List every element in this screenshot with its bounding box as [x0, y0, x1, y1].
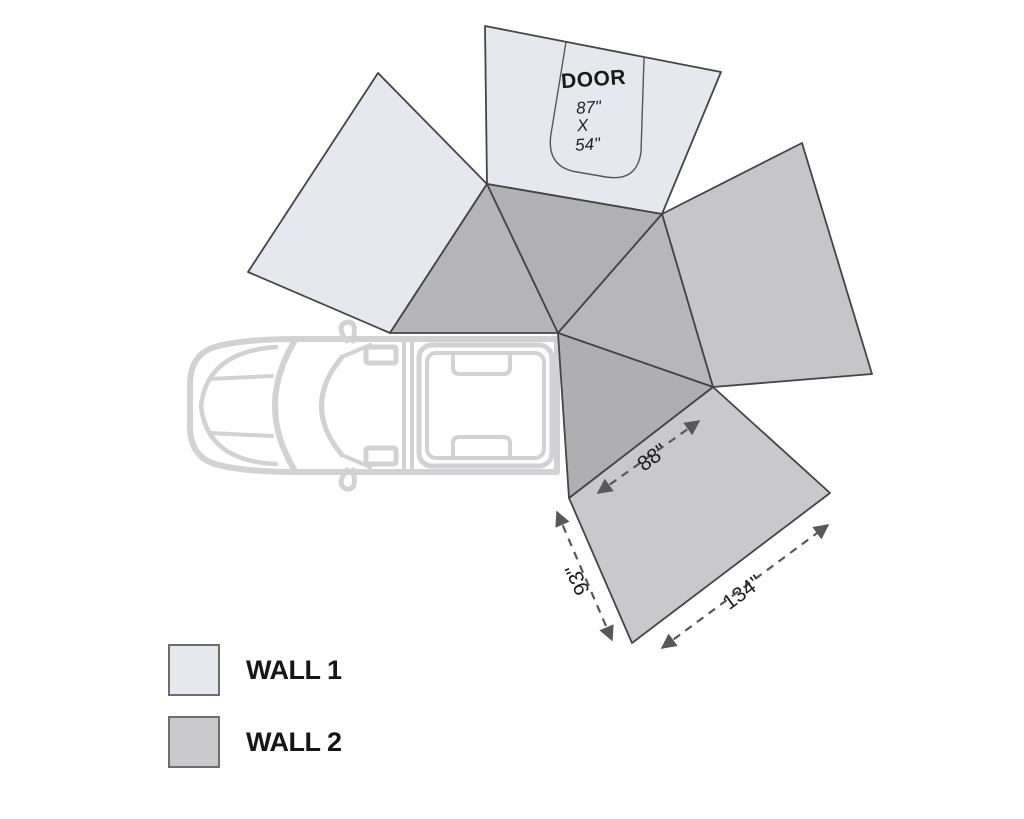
vehicle-front-inner-line [201, 347, 276, 464]
vehicle-b-pillar-bottom [366, 448, 396, 464]
door-title-label: DOOR [560, 66, 626, 93]
measurement-134-label: 134" [719, 571, 767, 615]
awning-dimensions-diagram: DOOR 87" X 54" 88" 93" 134" WALL 1 [0, 0, 1024, 819]
vehicle-bed-notch-bottom [453, 437, 510, 457]
vehicle-hood-crease-top [209, 376, 272, 379]
vehicle-roof-front-arc [322, 357, 343, 455]
vehicle-mirror-bottom [341, 470, 354, 489]
wall1-door-panel [485, 26, 721, 214]
measurement-93-label: 93" [561, 561, 595, 599]
door-height-label: 54" [575, 134, 602, 155]
vehicle-body-outline [190, 339, 557, 472]
vehicle-bed-outer [419, 345, 552, 466]
vehicle-bed-inner [427, 353, 544, 458]
diagram-canvas: DOOR 87" X 54" 88" 93" 134" [0, 0, 1024, 819]
legend-label-wall1: WALL 1 [246, 655, 342, 686]
wall2-swatch-icon [168, 716, 220, 768]
door-x-separator: X [575, 116, 589, 136]
vehicle-bed-notch-top [453, 354, 510, 374]
vehicle-windshield-cowl [275, 342, 294, 469]
vehicle-mirror-top [341, 322, 354, 341]
legend-row-wall1: WALL 1 [168, 644, 342, 696]
vehicle-b-pillar-top [366, 347, 396, 363]
door-width-label: 87" [576, 97, 603, 118]
legend-row-wall2: WALL 2 [168, 716, 342, 768]
legend-label-wall2: WALL 2 [246, 727, 342, 758]
wall1-swatch-icon [168, 644, 220, 696]
legend: WALL 1 WALL 2 [168, 644, 342, 768]
vehicle-hood-crease-bottom [209, 433, 272, 436]
vehicle-top-view-icon [190, 322, 557, 489]
